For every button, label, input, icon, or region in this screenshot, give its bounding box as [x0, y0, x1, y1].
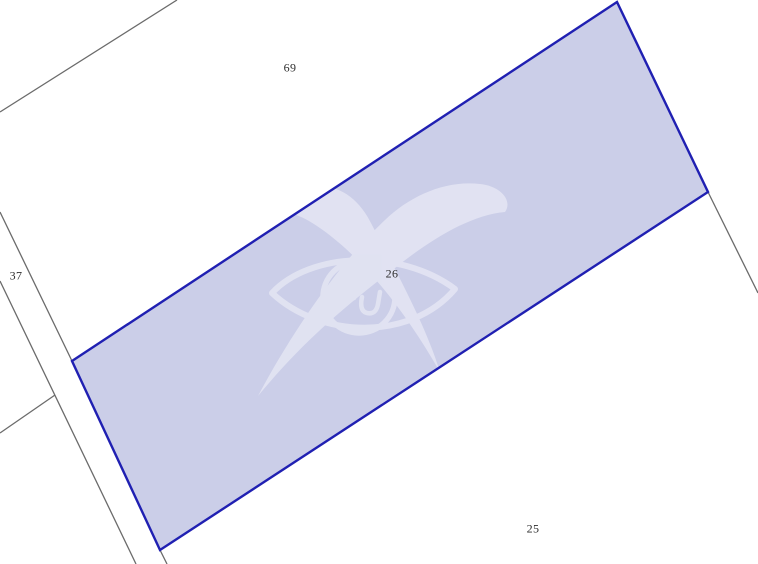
parcel-label-69: 69: [284, 61, 297, 76]
parcel-label-26: 26: [386, 267, 399, 282]
parcel-label-37: 37: [10, 269, 23, 284]
boundary-line-bottom-stub: [160, 550, 167, 564]
boundary-line-right: [708, 192, 758, 293]
boundary-line-topleft: [0, 0, 177, 112]
parcel-label-25: 25: [527, 522, 540, 537]
cadastral-map: 69 37 26 25: [0, 0, 758, 564]
boundary-line-branch: [0, 395, 55, 433]
map-canvas: [0, 0, 758, 564]
boundary-line-left-upper: [0, 212, 72, 361]
